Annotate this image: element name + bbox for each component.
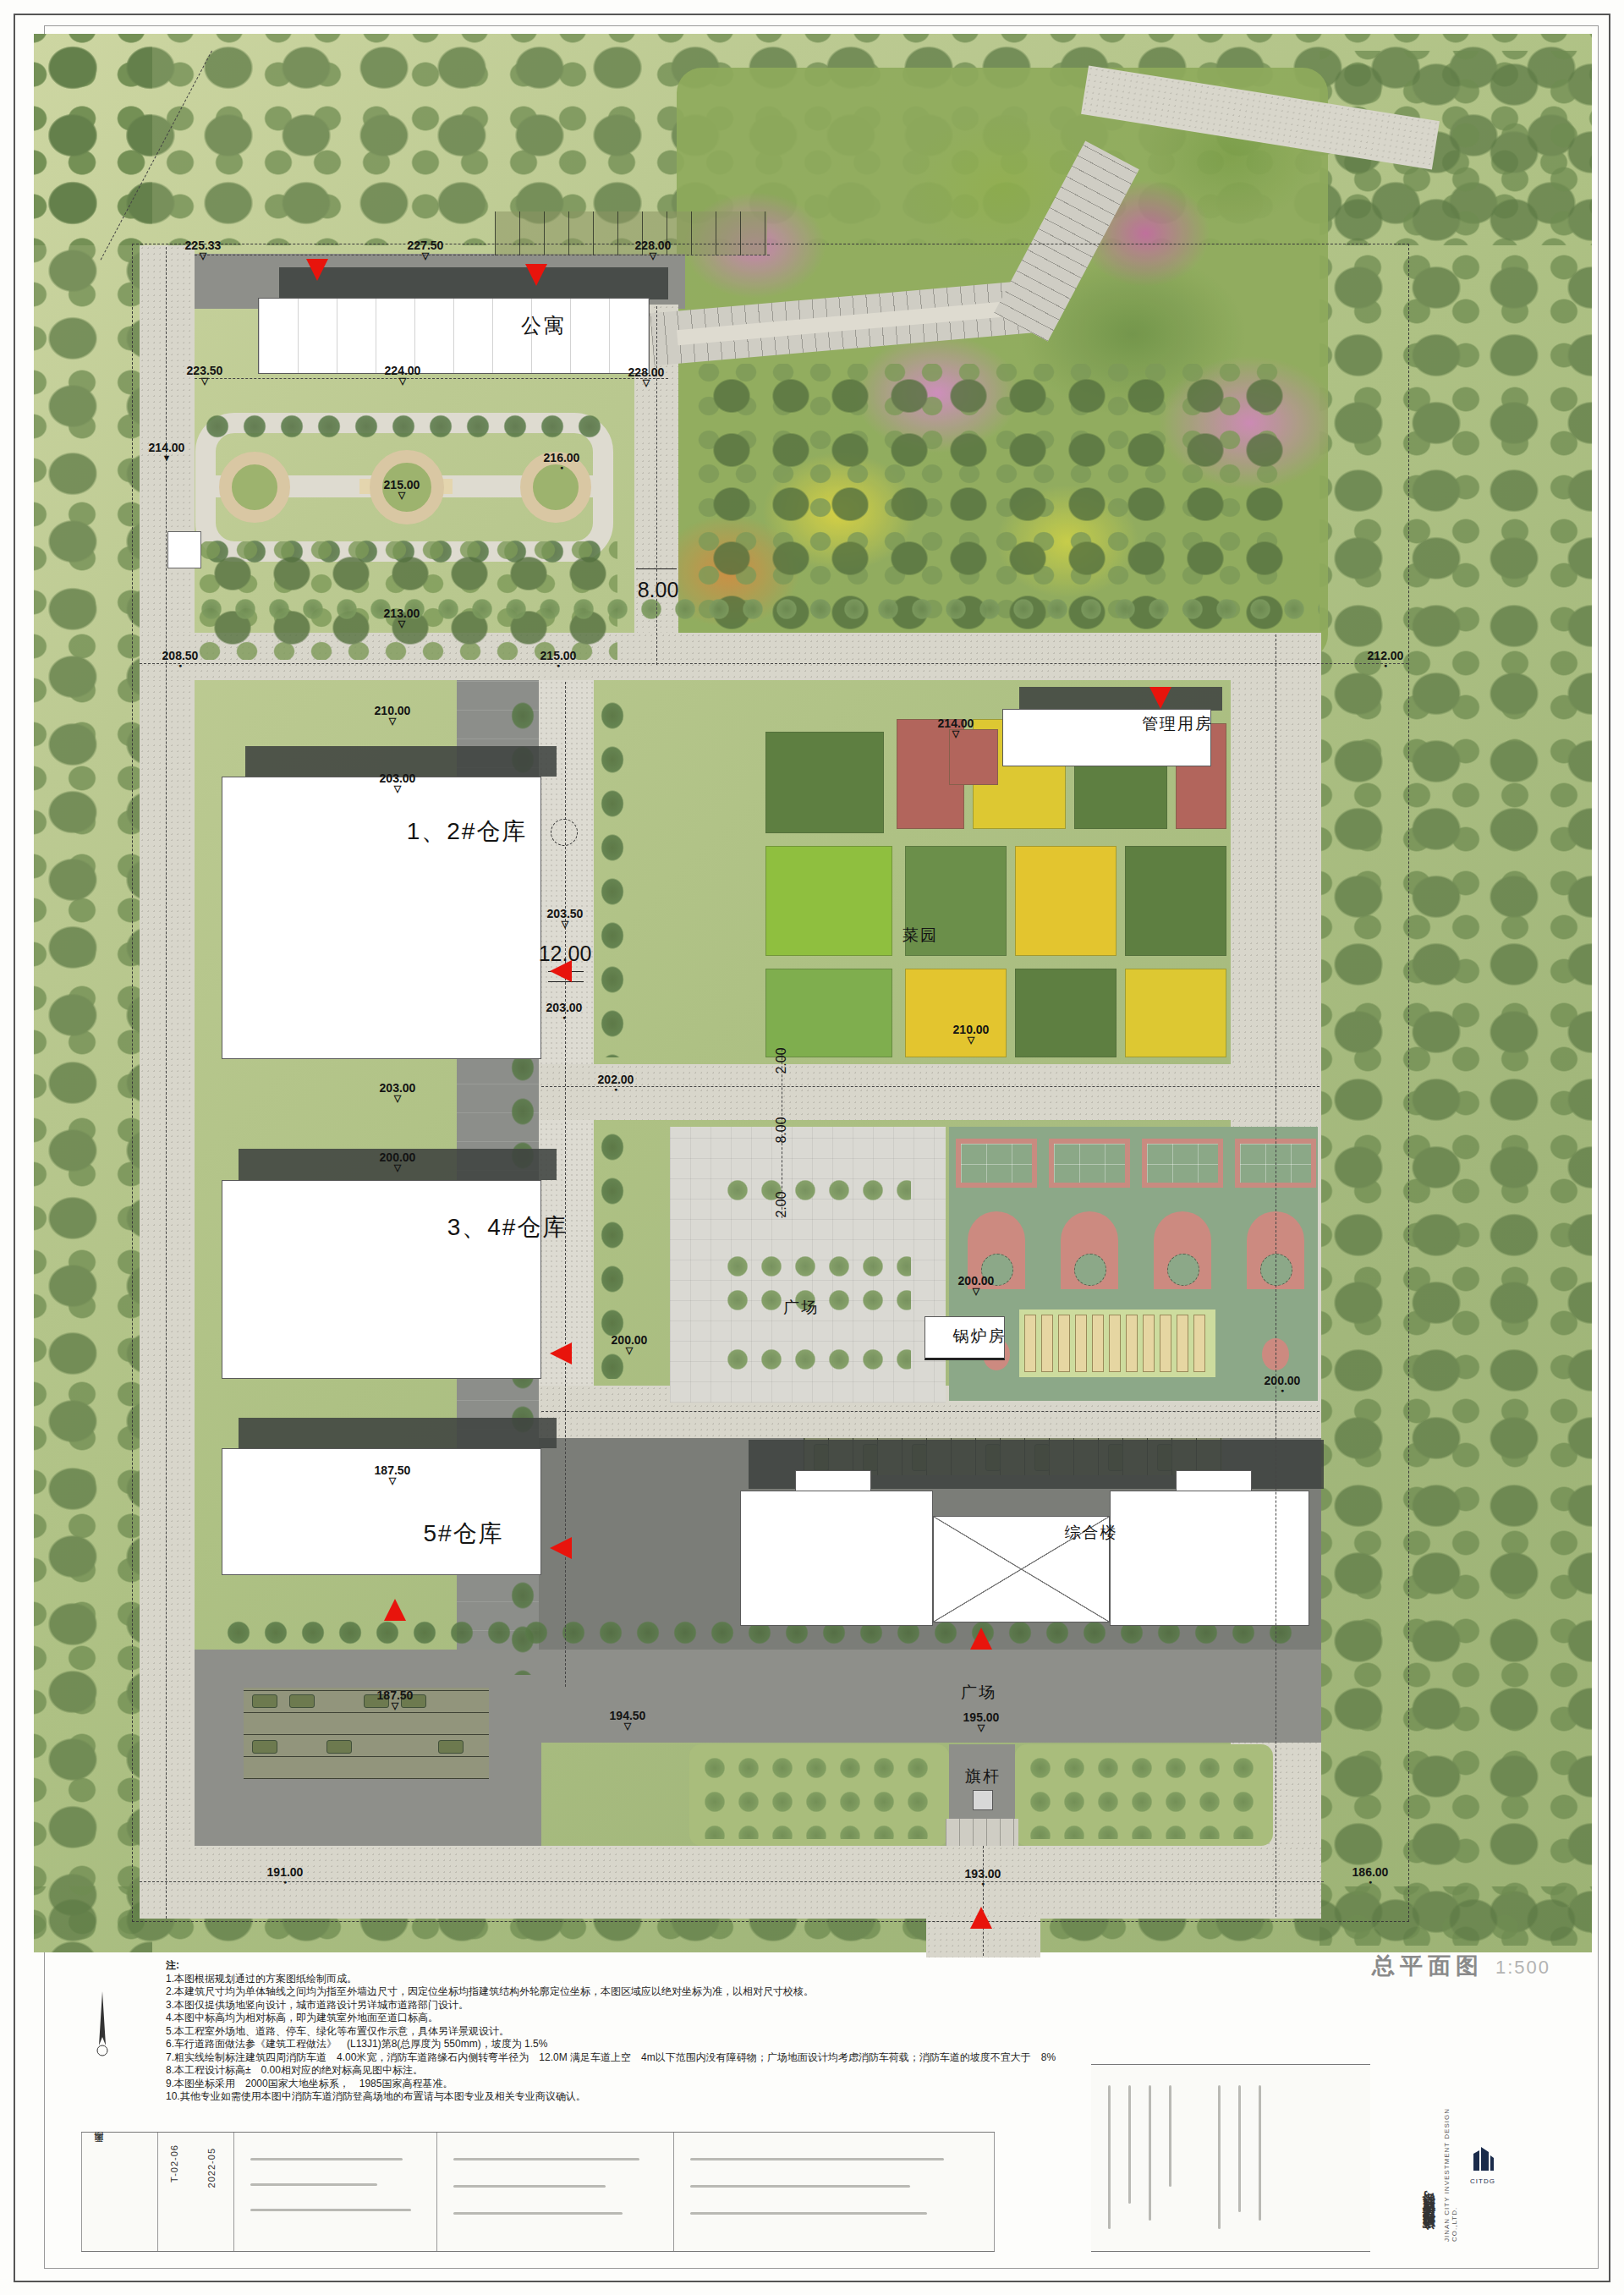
apartment-label: 公寓 — [521, 316, 567, 336]
elev-214-00-mgmt: 214.00▽ — [938, 717, 974, 737]
elev-194-50: 194.50▽ — [610, 1710, 646, 1729]
sheet-title-text: 总平面图 — [1372, 1953, 1484, 1979]
elev-228-00-a: 228.00▽ — [635, 239, 672, 259]
dim-line-middle — [140, 663, 1408, 664]
flagpole-label: 旗杆 — [965, 1768, 1001, 1784]
note-line: 7.粗实线绘制标注建筑四周消防车道 4.00米宽，消防车道路缘石内侧转弯半径为 … — [166, 2051, 1056, 2065]
elev-193-00: 193.00● — [965, 1868, 1001, 1887]
entrance-marker — [550, 960, 572, 982]
complex-building-label: 综合楼 — [1065, 1524, 1118, 1540]
note-line: 5.本工程室外场地、道路、停车、绿化等布置仅作示意，具体另详景观设计。 — [166, 2025, 1056, 2039]
elev-223-50: 223.50▽ — [187, 365, 223, 384]
elev-203-50: 203.50▽ — [547, 908, 584, 927]
note-line: 8.本工程设计标高± 0.00相对应的绝对标高见图中标注。 — [166, 2064, 1056, 2078]
notes-block: 注: 1.本图根据规划通过的方案图纸绘制而成。2.本建筑尺寸均为单体轴线之间均为… — [166, 1959, 1056, 2104]
sheet-scale: 1:500 — [1495, 1957, 1550, 1978]
drawing-sheet: 注: 1.本图根据规划通过的方案图纸绘制而成。2.本建筑尺寸均为单体轴线之间均为… — [0, 0, 1624, 2295]
entrance-marker — [1149, 687, 1171, 709]
elev-203-00-b: 203.00● — [546, 1002, 583, 1021]
company-name-cn: 济南城投集团设计有限公司 — [1421, 2073, 1437, 2242]
entrance-marker — [384, 1599, 406, 1621]
warehouse12-label: 1、2#仓库 — [407, 820, 528, 844]
boiler-room-label: 锅炉房 — [953, 1328, 1007, 1344]
warehouse5-label: 5#仓库 — [423, 1522, 503, 1546]
elev-186-00: 186.00● — [1352, 1866, 1389, 1886]
titleblock-date: 2022-05 — [206, 2148, 217, 2188]
note-line: 2.本建筑尺寸均为单体轴线之间均为指至外墙边尺寸，因定位坐标均指建筑结构外轮廓定… — [166, 1985, 1056, 1999]
site-boundary — [132, 244, 1409, 1922]
centerline-east-road — [1276, 634, 1276, 1917]
road-circle-node — [551, 819, 578, 846]
entrance-marker — [970, 1628, 992, 1650]
dim-tick-8m — [636, 568, 677, 569]
notes-heading: 注: — [166, 1959, 1056, 1973]
entrance-marker — [970, 1907, 992, 1929]
dim-8-00-road: 8.00 — [638, 579, 679, 601]
entrance-marker — [550, 1537, 572, 1559]
centerline-garden-road — [656, 306, 657, 665]
dim-line-apartment — [195, 378, 668, 379]
north-arrow-icon — [91, 1990, 113, 2064]
elev-200-00-c: 200.00▽ — [958, 1275, 995, 1294]
entrance-marker — [306, 259, 328, 281]
dim-line-top — [195, 255, 770, 255]
note-line: 10.其他专业如需使用本图中消防车道消防登高场地的布置请与本图专业及相关专业商议… — [166, 2090, 1056, 2104]
elev-210-00-a: 210.00▽ — [375, 705, 411, 724]
elev-195-00: 195.00▽ — [963, 1711, 1000, 1731]
elev-228-00-b: 228.00▽ — [628, 366, 665, 386]
centerline-road200 — [541, 1411, 1319, 1412]
elev-213-00: 213.00▽ — [384, 607, 420, 627]
note-line: 9.本图坐标采用 2000国家大地坐标系， 1985国家高程基准。 — [166, 2078, 1056, 2091]
elev-214-00-west: 214.00▼ — [149, 442, 185, 461]
elev-200-00-d: 200.00● — [1265, 1375, 1301, 1394]
elev-200-00-a: 200.00▽ — [380, 1151, 416, 1171]
titleblock-drawing-no: T-02-06 — [169, 2144, 179, 2182]
elev-200-00-b: 200.00▽ — [612, 1334, 648, 1353]
centerline-west-road — [166, 247, 167, 1919]
titleblock-mid — [1091, 2064, 1370, 2252]
dim-8-00-b: 8.00 — [775, 1117, 788, 1143]
elev-227-50: 227.50▽ — [408, 239, 444, 259]
company-logo-text: CITDG — [1468, 2177, 1497, 2185]
mgmt-building-label: 管理用房 — [1142, 716, 1213, 732]
centerline-entrance — [983, 1846, 984, 1956]
plaza-south-label: 广场 — [961, 1684, 996, 1700]
note-line: 3.本图仅提供场地竖向设计，城市道路设计另详城市道路部门设计。 — [166, 1999, 1056, 2012]
note-line: 6.车行道路面做法参《建筑工程做法》 (L13J1)第8(总厚度为 550mm)… — [166, 2038, 1056, 2051]
elev-225-33: 225.33▽ — [185, 239, 222, 259]
elev-224-00: 224.00▽ — [385, 365, 421, 384]
centerline-south-road — [140, 1881, 1324, 1882]
elev-210-00-b: 210.00▽ — [953, 1024, 990, 1043]
elev-187-50-b: 187.50▽ — [377, 1689, 414, 1709]
elev-187-50-a: 187.50▽ — [375, 1464, 411, 1484]
sheet-title: 总平面图1:500 — [1372, 1951, 1550, 1981]
entrance-marker — [550, 1342, 572, 1364]
elev-212-00: 212.00● — [1368, 650, 1404, 669]
note-line: 4.本图中标高均为相对标高，即为建筑室外地面至道口标高。 — [166, 2012, 1056, 2025]
entrance-marker — [525, 264, 547, 286]
titleblock-left: 施工图 T-02-06 2022-05 — [81, 2132, 995, 2252]
elev-203-00-a: 203.00▽ — [380, 772, 416, 792]
elev-202-00: 202.00● — [598, 1073, 634, 1093]
elev-215-00-garden: 215.00▽ — [384, 479, 420, 498]
company-block: CITDG 济南城投集团设计有限公司 JINAN CITY INVESTMENT… — [1387, 2064, 1590, 2250]
warehouse34-label: 3、4#仓库 — [447, 1216, 568, 1240]
company-name-en: JINAN CITY INVESTMENT DESIGN CO.,LTD. — [1443, 2073, 1458, 2242]
veg-garden-label: 菜园 — [903, 927, 938, 943]
company-logo-icon: CITDG — [1468, 2145, 1497, 2174]
dim-2-00-b: 2.00 — [775, 1191, 788, 1217]
elev-191-00: 191.00● — [267, 1866, 304, 1886]
elev-208-50: 208.50● — [162, 650, 199, 669]
elev-203-00-c: 203.00▽ — [380, 1082, 416, 1101]
elev-215-00-road: 215.00● — [540, 650, 577, 669]
dim-2-00-a: 2.00 — [775, 1047, 788, 1073]
plaza-mid-label: 广场 — [783, 1299, 819, 1315]
titleblock-stage: 施工图 — [93, 2148, 106, 2150]
note-line: 1.本图根据规划通过的方案图纸绘制而成。 — [166, 1973, 1056, 1986]
elev-216-00: 216.00● — [544, 452, 580, 471]
centerline-road202 — [541, 1086, 1319, 1087]
flagpole-base — [973, 1790, 993, 1810]
garden-hut — [167, 531, 201, 568]
